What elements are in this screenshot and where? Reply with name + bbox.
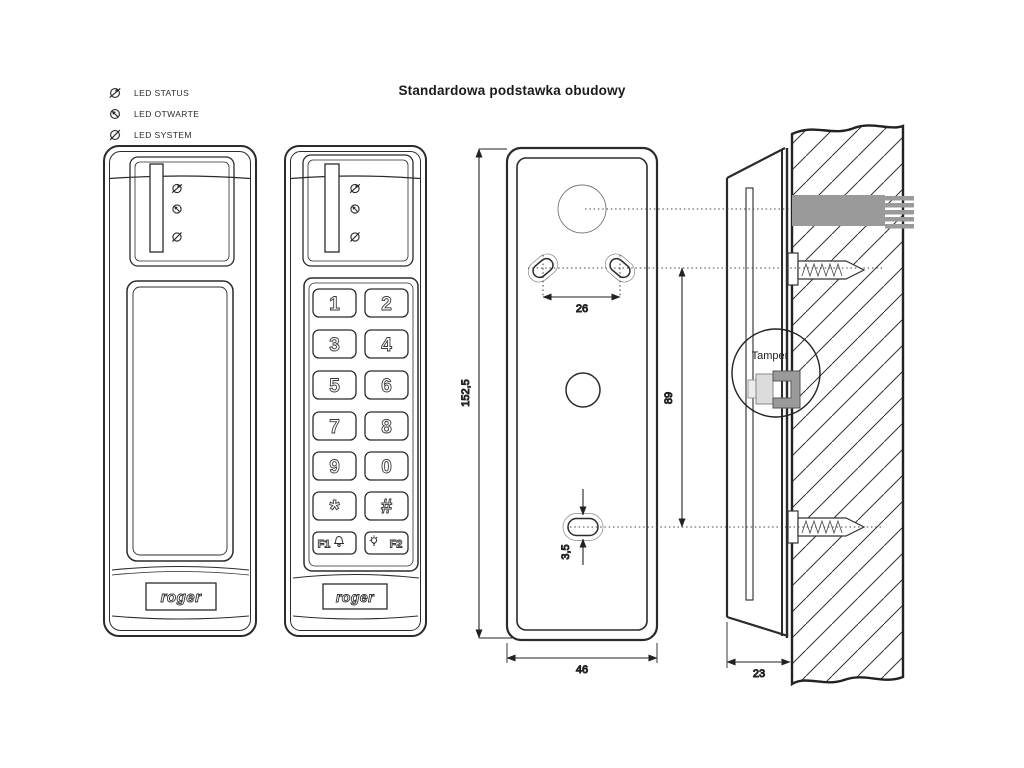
svg-text:7: 7: [329, 417, 340, 438]
reader-top-panel: [130, 157, 234, 266]
side-view: Tamper: [727, 125, 914, 684]
key-6: 6: [365, 371, 408, 399]
dim-26-label: 26: [576, 303, 588, 315]
dim-depth: 23: [727, 622, 790, 680]
svg-text:#: #: [381, 496, 392, 518]
brand-logo: roger: [161, 589, 203, 606]
led-system-icon: [350, 232, 359, 241]
dim-89-label: 89: [663, 392, 675, 404]
dim-hole-spacing-v: 89: [663, 268, 682, 527]
svg-text:2: 2: [381, 294, 392, 315]
tamper-plunger: [756, 374, 773, 404]
key-9: 9: [313, 452, 356, 480]
center-hole: [566, 373, 600, 407]
tamper-cap: [748, 380, 756, 398]
tamper-label: Tamper: [752, 350, 789, 362]
bell-icon: [334, 537, 344, 547]
key-star: *: [313, 492, 356, 524]
key-4: 4: [365, 330, 408, 358]
bezel-line: [291, 176, 420, 179]
svg-text:F2: F2: [390, 539, 403, 551]
svg-text:9: 9: [329, 457, 340, 478]
dim-width: 46: [507, 643, 657, 676]
reader-front-view: roger: [104, 146, 256, 636]
svg-text:3: 3: [329, 335, 340, 356]
svg-text:*: *: [329, 494, 340, 524]
card-slot: [325, 164, 339, 252]
key-f1: F1: [313, 532, 356, 554]
key-0: 0: [365, 452, 408, 480]
dimensions: 152,5 26 89 3,5 46: [460, 149, 790, 680]
svg-text:0: 0: [381, 457, 392, 478]
key-1: 1: [313, 289, 356, 317]
brand-logo: roger: [336, 589, 375, 605]
keypad-keys: 1 2 3 4 5 6 7 8 9 0 * # F1: [313, 289, 408, 554]
svg-text:4: 4: [381, 335, 392, 356]
led-otwarte-icon: [351, 205, 359, 213]
led-otwarte-icon: [173, 205, 181, 213]
key-7: 7: [313, 412, 356, 440]
svg-text:F1: F1: [318, 539, 331, 551]
dim-height-label: 152,5: [460, 379, 472, 407]
svg-text:1: 1: [329, 294, 340, 315]
led-system-icon: [172, 232, 181, 241]
backplate-rear-view: [507, 148, 657, 640]
dim-hole-spacing-h: 26: [543, 297, 620, 315]
card-slot: [150, 164, 163, 252]
dim-23-label: 23: [753, 668, 765, 680]
svg-text:5: 5: [329, 376, 340, 397]
dim-46-label: 46: [576, 664, 588, 676]
keypad-top-panel: [303, 155, 413, 266]
key-5: 5: [313, 371, 356, 399]
svg-text:8: 8: [381, 417, 392, 438]
keypad-front-view: 1 2 3 4 5 6 7 8 9 0 * # F1: [285, 146, 426, 636]
reader-middle-panel: [127, 281, 233, 561]
key-hash: #: [365, 492, 408, 520]
key-2: 2: [365, 289, 408, 317]
reader-logo-band: roger: [112, 567, 249, 620]
key-3: 3: [313, 330, 356, 358]
key-8: 8: [365, 412, 408, 440]
drawing-canvas: roger 1: [0, 0, 1024, 768]
dim-35-label: 3,5: [560, 544, 572, 559]
led-status-icon: [350, 184, 360, 192]
key-f2: F2: [365, 532, 408, 554]
dim-height: 152,5: [460, 149, 512, 638]
keypad-panel: 1 2 3 4 5 6 7 8 9 0 * # F1: [304, 278, 418, 571]
bulb-icon: [370, 535, 377, 545]
led-status-icon: [172, 184, 182, 192]
technical-drawing-page: LED STATUS LED OTWARTE LED SYSTEM Standa…: [0, 0, 1024, 768]
svg-text:6: 6: [381, 376, 392, 397]
keypad-logo-band: roger: [293, 575, 419, 620]
